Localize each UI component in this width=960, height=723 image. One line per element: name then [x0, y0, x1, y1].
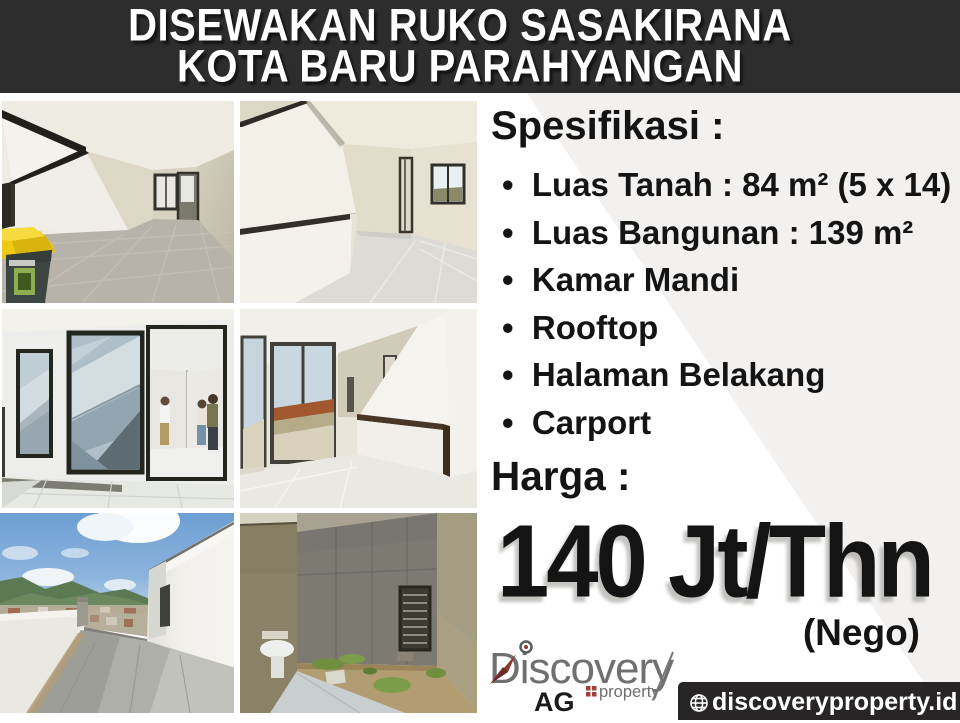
svg-text:property: property — [599, 683, 660, 701]
svg-text:AG: AG — [534, 687, 575, 717]
